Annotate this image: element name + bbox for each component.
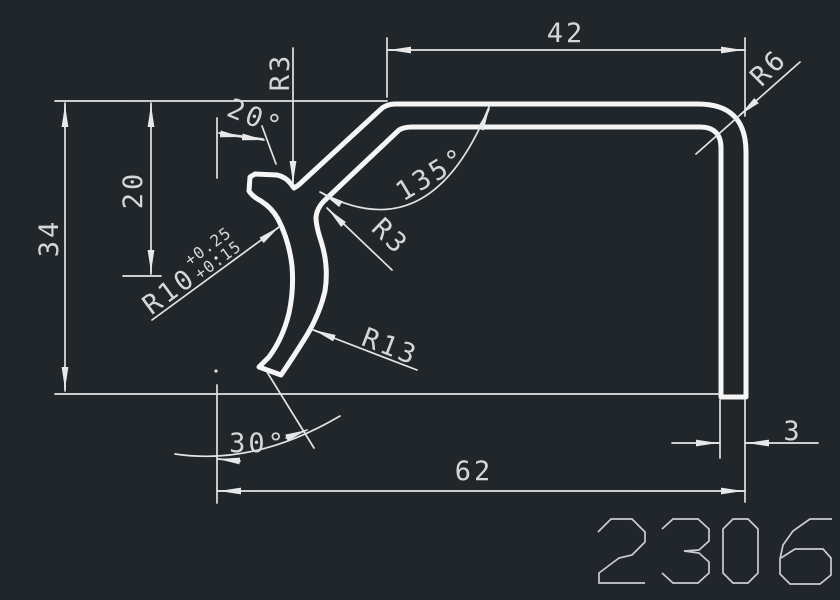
dim-notch-radius-label: R3	[265, 53, 296, 92]
dim-hook-inner-radius-label: R13	[358, 322, 423, 372]
angle30-arrow-left	[218, 459, 240, 461]
r10-arrow	[262, 227, 279, 240]
dim-tip-angle-label: 30°	[229, 428, 287, 459]
dim-bend-fillet-label: R3	[365, 212, 414, 261]
dim-wall-thickness-label: 3	[783, 416, 802, 447]
digit-2	[598, 519, 645, 583]
dim-corner-radius-label: R6	[744, 43, 793, 92]
dim-total-height-label: 34	[34, 219, 65, 258]
r6-arrow	[740, 101, 756, 115]
r13-arrow	[314, 330, 334, 338]
digit-3	[662, 519, 709, 583]
dim-bend-angle-label: 135°	[391, 142, 473, 208]
r3-fillet-arrow	[328, 209, 343, 224]
digit-6	[780, 519, 832, 584]
dim-top-width-label: 42	[547, 18, 586, 49]
profile-outline	[249, 104, 746, 397]
dimension-labels: 42 34 20 62 3 R6 R3 20° 135° R3 R13 30° …	[34, 18, 803, 487]
reference-dot-2	[214, 369, 217, 372]
dim-hook-outer-radius-group: R10 +0.25 +0.15	[132, 223, 246, 321]
cad-drawing-canvas: 42 34 20 62 3 R6 R3 20° 135° R3 R13 30° …	[0, 0, 840, 600]
extension-lines	[55, 38, 745, 503]
digit-0	[723, 519, 758, 583]
drawing-number	[598, 519, 832, 584]
dim-total-width-label: 62	[455, 456, 494, 487]
cad-drawing: 42 34 20 62 3 R6 R3 20° 135° R3 R13 30° …	[0, 0, 840, 600]
dim-upper-height-label: 20	[118, 171, 149, 210]
